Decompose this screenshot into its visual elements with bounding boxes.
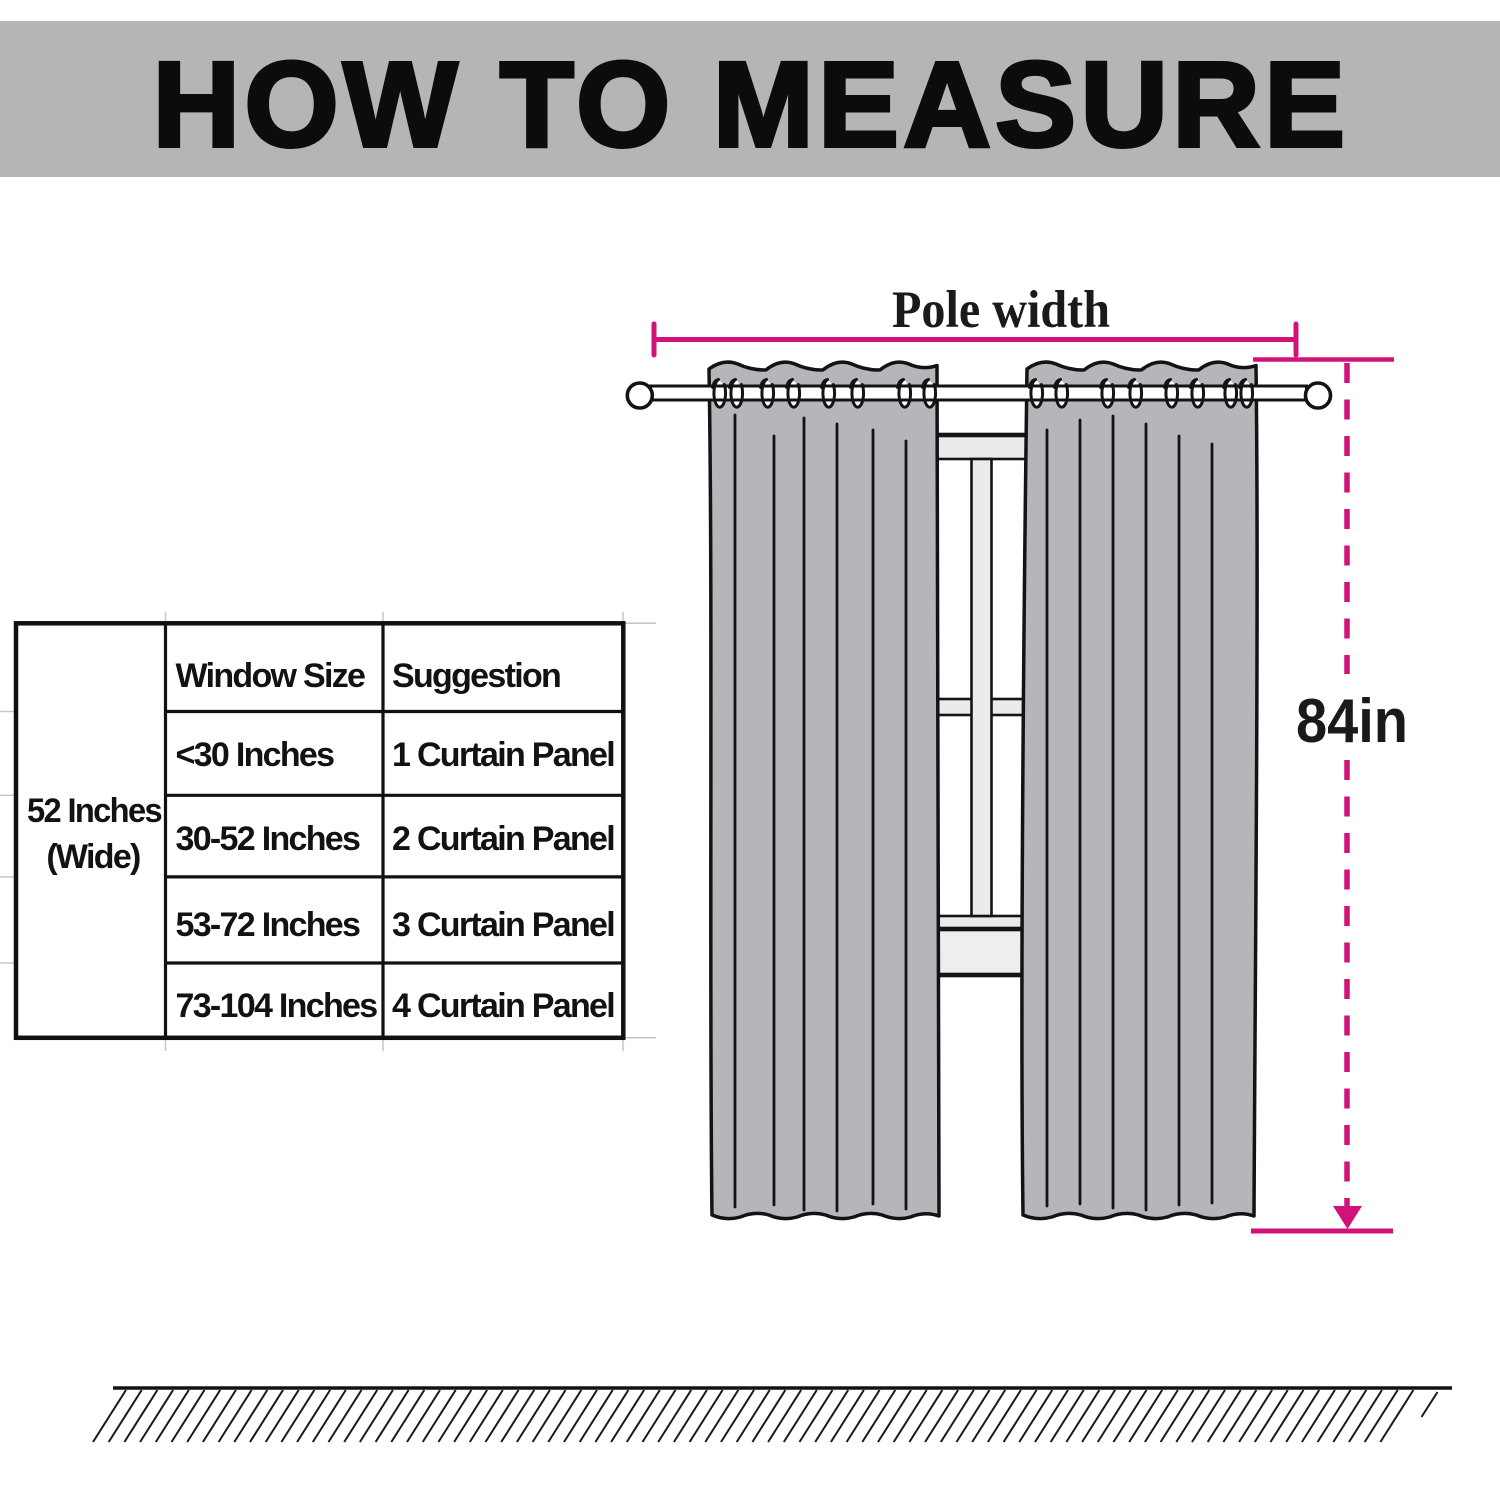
svg-text:HOW TO MEASURE: HOW TO MEASURE: [153, 36, 1350, 172]
svg-text:Suggestion: Suggestion: [392, 657, 560, 695]
svg-text:2 Curtain Panel: 2 Curtain Panel: [392, 820, 614, 858]
svg-text:3 Curtain Panel: 3 Curtain Panel: [392, 906, 614, 944]
svg-text:84in: 84in: [1296, 687, 1408, 756]
svg-text:52 Inches: 52 Inches: [27, 792, 162, 830]
svg-text:Pole width: Pole width: [892, 281, 1110, 339]
svg-text:1 Curtain Panel: 1 Curtain Panel: [392, 736, 614, 774]
svg-text:4 Curtain Panel: 4 Curtain Panel: [392, 987, 614, 1025]
svg-text:<30 Inches: <30 Inches: [176, 736, 335, 774]
svg-text:(Wide): (Wide): [46, 838, 140, 876]
svg-text:53-72 Inches: 53-72 Inches: [176, 906, 361, 944]
svg-text:Window Size: Window Size: [176, 657, 366, 695]
svg-text:30-52 Inches: 30-52 Inches: [176, 820, 361, 858]
svg-text:73-104 Inches: 73-104 Inches: [176, 987, 378, 1025]
